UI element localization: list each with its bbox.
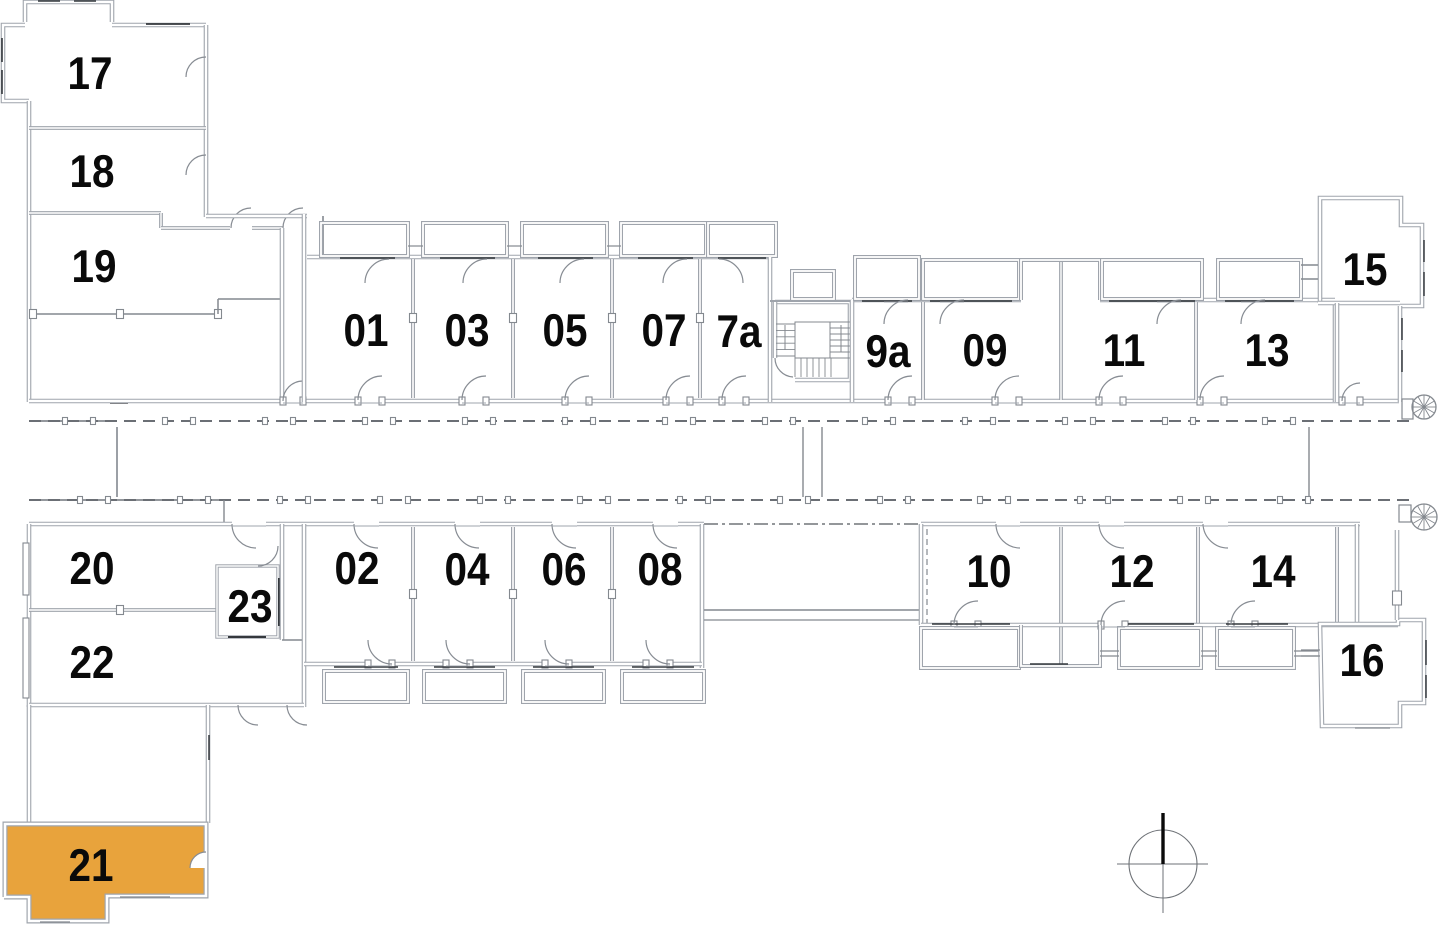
- svg-text:15: 15: [1342, 243, 1387, 295]
- svg-text:14: 14: [1250, 545, 1295, 597]
- svg-text:04: 04: [444, 543, 489, 595]
- svg-text:17: 17: [67, 47, 112, 99]
- svg-text:20: 20: [69, 542, 114, 594]
- svg-text:7a: 7a: [716, 305, 761, 357]
- svg-text:02: 02: [334, 542, 379, 594]
- svg-text:22: 22: [69, 636, 114, 688]
- svg-text:12: 12: [1109, 545, 1154, 597]
- svg-text:05: 05: [542, 304, 587, 356]
- svg-text:9a: 9a: [865, 325, 910, 377]
- svg-text:19: 19: [71, 240, 116, 292]
- svg-text:11: 11: [1103, 324, 1146, 376]
- svg-text:07: 07: [641, 304, 686, 356]
- svg-text:10: 10: [966, 545, 1011, 597]
- svg-text:18: 18: [69, 145, 114, 197]
- svg-text:08: 08: [637, 543, 682, 595]
- svg-text:06: 06: [541, 543, 586, 595]
- svg-text:03: 03: [444, 304, 489, 356]
- svg-text:01: 01: [343, 304, 388, 356]
- svg-text:13: 13: [1244, 324, 1289, 376]
- svg-text:21: 21: [68, 839, 113, 891]
- svg-text:16: 16: [1339, 634, 1384, 686]
- svg-text:09: 09: [962, 324, 1007, 376]
- svg-text:23: 23: [227, 580, 272, 632]
